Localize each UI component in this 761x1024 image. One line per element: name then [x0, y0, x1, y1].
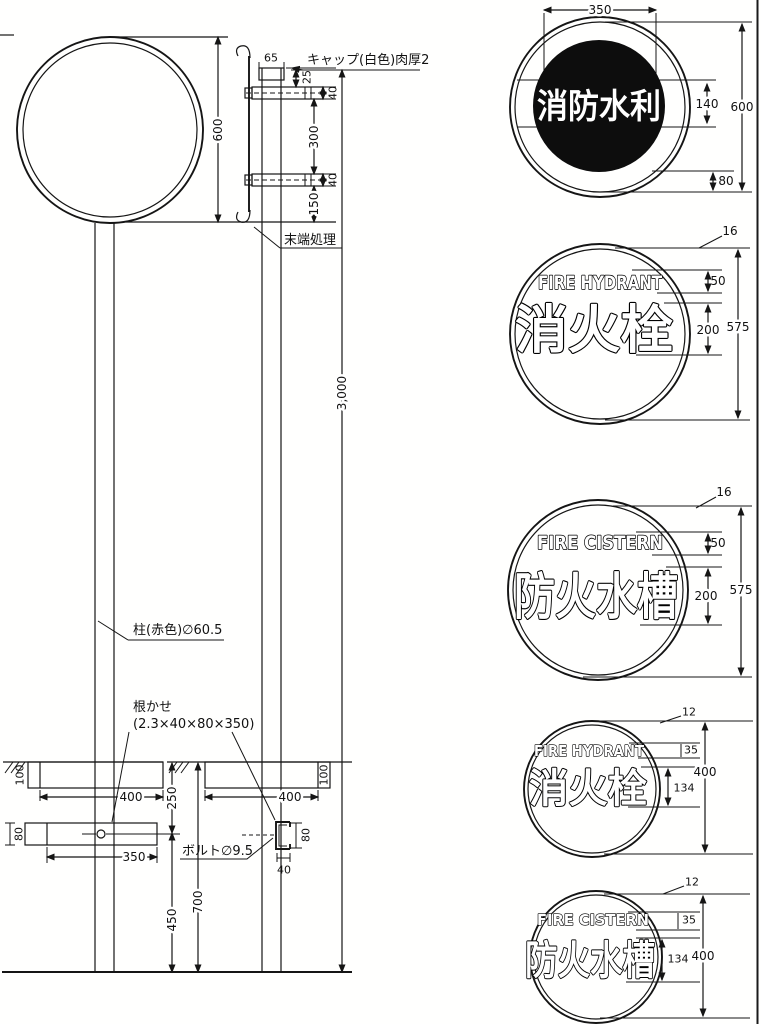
sign4-en-text: FIRE HYDRANT [534, 742, 645, 760]
dim-80-left: 80 [13, 827, 26, 841]
sign3-dim-50: 50 [710, 536, 725, 550]
dim-100-left: 100 [14, 765, 27, 786]
sign2-dim-575: 575 [727, 320, 750, 334]
plate-bottom-hook [237, 210, 250, 222]
dim-400-ext [40, 790, 163, 801]
sign2-dim-200: 200 [697, 323, 720, 337]
sign1-jp-text: 消防水利 [537, 87, 661, 127]
sign2-jp-text: 消火栓 [515, 301, 673, 361]
sign-face-hydrant-small: FIRE HYDRANT 消火栓 35 134 400 12 [524, 706, 753, 858]
post-label: 柱(赤色)∅60.5 [133, 622, 222, 638]
sign-disc-inner-ring [23, 43, 197, 217]
sign5-dim-400: 400 [692, 949, 715, 963]
sign-face-cistern-large: FIRE CISTERN 防火水槽 50 200 575 16 [508, 485, 752, 680]
dim-250: 250 [165, 787, 179, 810]
post-cap [259, 68, 284, 80]
bolt-hole [97, 830, 105, 838]
drawing-canvas: 600 柱(赤色)∅60.5 根かせ (2.3×40×80×350) 100 4… [0, 0, 761, 1024]
sign3-en-text: FIRE CISTERN [537, 532, 663, 554]
plate-top-hook [237, 46, 250, 58]
dim-450: 450 [165, 909, 179, 932]
dim-80-right: 80 [300, 828, 313, 842]
sign-face-suiri: 消防水利 350 140 600 80 [510, 3, 753, 197]
rim-leader [663, 886, 684, 894]
sign5-dim-35: 35 [682, 914, 696, 927]
end-treatment-label: 末端処理 [284, 233, 336, 248]
cap-label: キャップ(白色)肉厚2 [307, 52, 429, 68]
dim-40-ticks [277, 853, 290, 862]
anchor-bar-side [205, 762, 330, 788]
dim-100-right: 100 [318, 765, 331, 786]
sign4-jp-text: 消火栓 [529, 766, 647, 812]
anchor-size-label: (2.3×40×80×350) [133, 717, 254, 732]
dim-400-right: 400 [279, 790, 302, 804]
dim-600: 600 [211, 119, 225, 142]
rim-leader [699, 236, 722, 248]
sign4-dim-134: 134 [674, 782, 695, 795]
sign4-dim-12: 12 [682, 706, 696, 719]
sign1-dim-350: 350 [589, 3, 612, 17]
bolt-label: ボルト∅9.5 [182, 844, 253, 859]
side-view: 65 キャップ(白色)肉厚2 25 40 300 40 150 末端処理 3,0… [167, 46, 429, 972]
dim-3000: 3,000 [335, 376, 349, 410]
anchor-label: 根かせ [133, 700, 172, 715]
sign1-dim-80: 80 [718, 174, 733, 188]
sign5-dim-134: 134 [668, 953, 689, 966]
sign5-jp-text: 防火水槽 [525, 938, 655, 984]
sign3-jp-text: 防火水槽 [514, 568, 678, 626]
dim-25: 25 [301, 70, 314, 84]
dim-40-upper: 40 [327, 86, 340, 100]
c-channel-section [276, 822, 290, 849]
sign5-dim-12: 12 [685, 876, 699, 889]
sign5-en-text: FIRE CISTERN [537, 911, 649, 929]
sign-disc-outer-ring [17, 37, 203, 223]
dim-150: 150 [307, 193, 321, 216]
sign1-dim-140: 140 [696, 97, 719, 111]
sign3-dim-200: 200 [695, 589, 718, 603]
sign4-dim-400: 400 [694, 765, 717, 779]
sign3-dim-16: 16 [716, 485, 731, 499]
sign-face-hydrant-large: FIRE HYDRANT 消火栓 50 200 575 16 [510, 224, 750, 424]
sign1-dim-600: 600 [731, 100, 754, 114]
sign2-dim-50: 50 [710, 274, 725, 288]
dim-40-lower: 40 [327, 173, 340, 187]
sign2-en-text: FIRE HYDRANT [538, 272, 662, 294]
anchor-leader-lines [112, 732, 275, 822]
sign4-dim-35: 35 [684, 744, 698, 757]
dim-40-channel: 40 [277, 864, 291, 877]
sign2-dim-16: 16 [722, 224, 737, 238]
dim-300: 300 [307, 126, 321, 149]
sign3-dim-575: 575 [730, 583, 753, 597]
sign-face-cistern-small: FIRE CISTERN 防火水槽 35 134 400 12 [525, 876, 750, 1024]
technical-drawing-page: 600 柱(赤色)∅60.5 根かせ (2.3×40×80×350) 100 4… [0, 0, 761, 1024]
dim-400-left: 400 [120, 790, 143, 804]
rim-leader [660, 716, 681, 723]
c-channel-inner [279, 825, 287, 846]
dim-65: 65 [264, 52, 278, 65]
dim-700: 700 [191, 891, 205, 914]
dim-350: 350 [123, 850, 146, 864]
